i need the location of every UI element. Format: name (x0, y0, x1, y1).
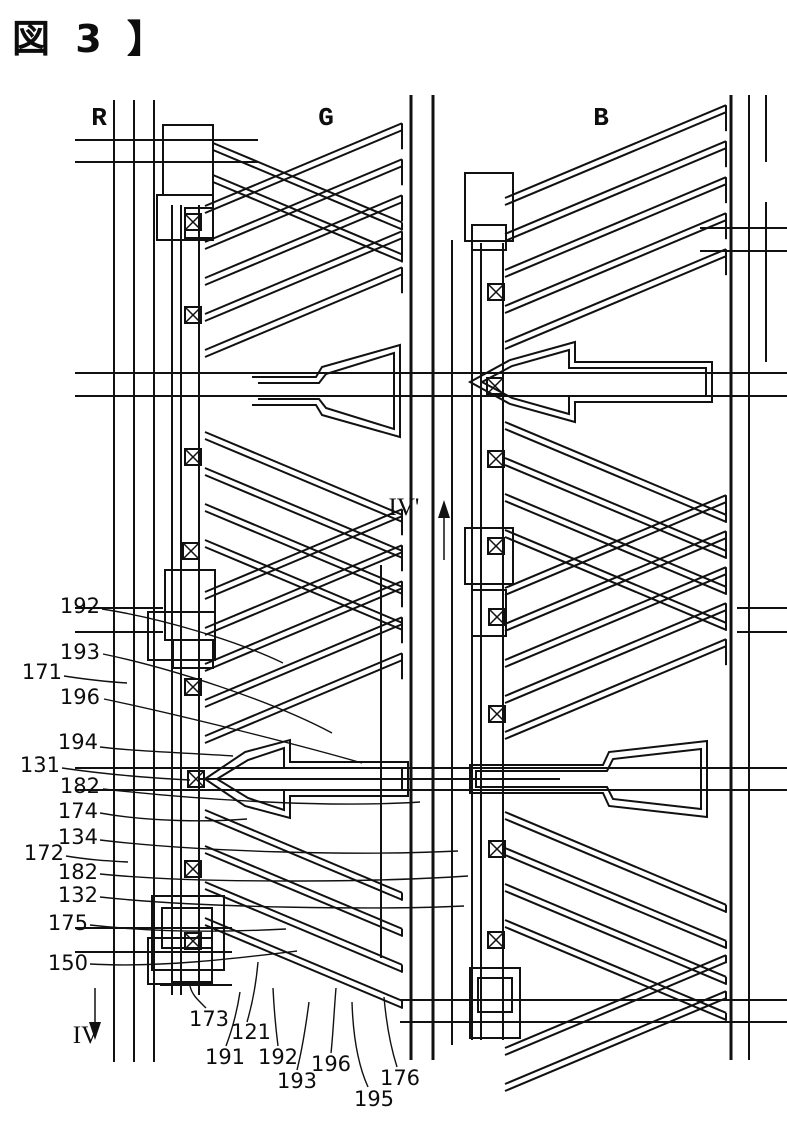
arrow-up-icon (438, 500, 450, 518)
electrode-finger (505, 812, 726, 905)
electrode-finger (505, 962, 726, 1055)
funnel-electrode-b1 (470, 342, 712, 422)
ref-label-195: 195 (347, 1087, 401, 1111)
electrode-finger (505, 422, 726, 515)
leader-150 (90, 951, 297, 965)
electrode-finger (205, 123, 402, 206)
electrode-finger (505, 646, 726, 739)
column-label-r: R (79, 103, 119, 133)
ref-label-174: 174 (50, 799, 98, 823)
ref-label-182-b: 182 (50, 860, 98, 884)
ref-label-196-bottom: 196 (304, 1052, 358, 1076)
section-marker-iv: IV (62, 1022, 110, 1050)
leader-192-left (102, 609, 283, 663)
section-marker-iv-prime: IV' (380, 494, 428, 522)
tft-region (478, 978, 512, 1012)
electrode-finger (505, 610, 726, 703)
funnel-electrode-g1-inner (258, 353, 394, 429)
leader-194 (100, 747, 233, 756)
column-label-b: B (581, 103, 621, 133)
electrode-finger (205, 509, 402, 592)
ref-label-182-a: 182 (52, 774, 100, 798)
ref-label-171: 171 (14, 660, 62, 684)
electrode-finger (205, 925, 402, 1008)
electrode-finger (505, 458, 726, 551)
ref-label-196-left: 196 (52, 685, 100, 709)
electrode-finger (205, 432, 402, 515)
funnel-electrode-b1-inner (482, 350, 706, 414)
pixel-layout-drawing (0, 0, 787, 1122)
ref-label-121: 121 (224, 1020, 278, 1044)
tft-region (172, 952, 212, 982)
electrode-finger (505, 141, 726, 234)
leader-176 (384, 997, 397, 1067)
leader-174 (100, 813, 247, 821)
electrode-finger (213, 143, 402, 222)
electrode-finger (205, 274, 402, 357)
electrode-finger (505, 537, 726, 630)
ref-label-192-left: 192 (52, 594, 100, 618)
column-label-g: G (306, 103, 346, 133)
leader-171 (64, 676, 127, 683)
electrode-finger (505, 495, 726, 588)
leader-196-bottom (331, 988, 336, 1053)
ref-label-194: 194 (50, 730, 98, 754)
electrode-finger (205, 547, 402, 630)
electrode-finger (205, 660, 402, 743)
electrode-finger (505, 955, 726, 1048)
ref-label-176: 176 (373, 1066, 427, 1090)
ref-label-191: 191 (198, 1045, 252, 1069)
electrode-finger (505, 848, 726, 941)
ref-label-192-bottom: 192 (251, 1045, 305, 1069)
electrode-finger (505, 991, 726, 1084)
electrode-finger (505, 256, 726, 349)
electrode-finger (505, 531, 726, 624)
electrode-finger (505, 220, 726, 313)
ref-label-150: 150 (40, 951, 88, 975)
electrode-finger (505, 501, 726, 594)
patent-figure-page: 図 3 】 R G B IV' IV 192 193 171 196 194 1… (0, 0, 787, 1122)
tft-region (163, 125, 213, 195)
electrode-finger (213, 182, 402, 261)
leader-121 (247, 962, 258, 1022)
ref-label-175: 175 (40, 911, 88, 935)
ref-label-132: 132 (50, 883, 98, 907)
electrode-finger (505, 998, 726, 1091)
tft-region (472, 225, 506, 250)
